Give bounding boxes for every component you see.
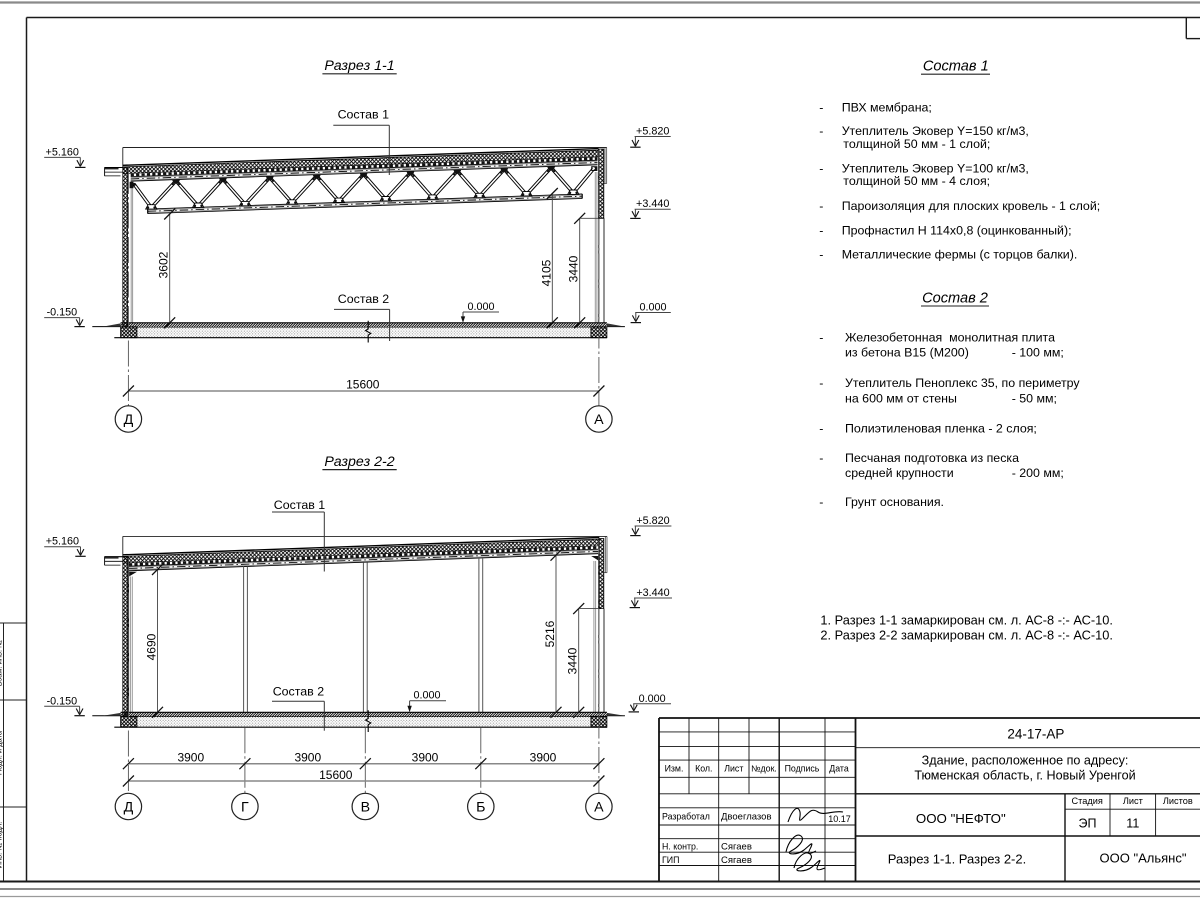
svg-text:-0.150: -0.150: [47, 307, 78, 319]
svg-text:Д: Д: [124, 799, 134, 815]
svg-text:Листов: Листов: [1163, 796, 1193, 806]
svg-text:Лист: Лист: [1123, 796, 1144, 806]
svg-text:Подпись: Подпись: [785, 764, 820, 774]
svg-text:+3.440: +3.440: [636, 587, 669, 599]
svg-text:0.000: 0.000: [413, 689, 440, 701]
svg-text:4105: 4105: [539, 259, 553, 286]
svg-text:4690: 4690: [144, 633, 158, 660]
svg-text:Н. контр.: Н. контр.: [662, 842, 698, 852]
svg-text:ООО "НЕФТО": ООО "НЕФТО": [916, 811, 1006, 826]
svg-text:Состав 1: Состав 1: [274, 498, 325, 512]
svg-text:Состав 1: Состав 1: [338, 107, 389, 121]
svg-text:Утеплитель Пеноплекс 35, по пе: Утеплитель Пеноплекс 35, по периметру: [845, 376, 1080, 390]
svg-text:средней крупности: средней крупности: [845, 466, 954, 480]
svg-text:из бетона В15 (М200): из бетона В15 (М200): [845, 346, 969, 360]
svg-text:Сягаев: Сягаев: [721, 855, 752, 866]
svg-text:ГИП: ГИП: [662, 855, 679, 865]
svg-text:0.000: 0.000: [639, 302, 666, 314]
svg-text:Взам. инв. №: Взам. инв. №: [0, 640, 4, 686]
svg-text:- 200 мм;: - 200 мм;: [1012, 466, 1064, 480]
svg-text:Грунт основания.: Грунт основания.: [845, 495, 944, 509]
svg-text:№док.: №док.: [751, 764, 777, 774]
svg-text:+3.440: +3.440: [636, 198, 669, 210]
svg-text:Д: Д: [124, 412, 134, 428]
svg-text:Здание, расположенное по адрес: Здание, расположенное по адресу:: [922, 753, 1129, 767]
svg-text:Разработал: Разработал: [662, 812, 710, 822]
svg-text:3900: 3900: [412, 750, 439, 764]
svg-text:Состав 2: Состав 2: [922, 290, 988, 306]
svg-text:+5.160: +5.160: [46, 146, 79, 158]
svg-text:Подп. и дата: Подп. и дата: [0, 730, 4, 775]
svg-text:+5.820: +5.820: [636, 515, 669, 527]
svg-text:В: В: [361, 799, 370, 815]
svg-text:3900: 3900: [294, 750, 321, 764]
svg-text:Разрез 1-1. Разрез 2-2.: Разрез 1-1. Разрез 2-2.: [888, 852, 1026, 867]
svg-text:3900: 3900: [177, 750, 204, 764]
svg-text:- 100 мм;: - 100 мм;: [1012, 346, 1064, 360]
svg-text:на 600 мм от стены: на 600 мм от стены: [845, 392, 957, 406]
svg-text:+5.820: +5.820: [636, 126, 669, 138]
svg-text:А: А: [594, 412, 604, 428]
svg-text:ПВХ мембрана;: ПВХ мембрана;: [842, 101, 932, 115]
svg-text:Пароизоляция для плоских крове: Пароизоляция для плоских кровель - 1 сло…: [842, 199, 1101, 213]
svg-text:-: -: [819, 376, 823, 390]
svg-text:А: А: [594, 799, 604, 815]
svg-text:толщиной 50 мм - 4 слоя;: толщиной 50 мм - 4 слоя;: [843, 174, 990, 188]
svg-text:Г: Г: [241, 799, 249, 815]
svg-text:-: -: [819, 124, 823, 138]
svg-text:Дата: Дата: [829, 764, 849, 774]
svg-text:2. Разрез 2-2 замаркирован см.: 2. Разрез 2-2 замаркирован см. л. АС-8 -…: [820, 628, 1113, 643]
svg-text:11: 11: [1126, 817, 1139, 831]
svg-text:15600: 15600: [319, 768, 353, 782]
svg-text:Инв. № подл.: Инв. № подл.: [0, 822, 4, 869]
svg-text:3440: 3440: [567, 255, 581, 282]
svg-text:3440: 3440: [566, 647, 580, 674]
svg-text:+5.160: +5.160: [46, 536, 79, 548]
svg-text:3900: 3900: [530, 750, 557, 764]
svg-text:Состав 1: Состав 1: [923, 59, 989, 75]
svg-text:Кол.: Кол.: [695, 764, 712, 774]
svg-text:3602: 3602: [156, 251, 170, 278]
svg-text:5216: 5216: [543, 620, 557, 647]
svg-text:Металлические фермы (с торцов: Металлические фермы (с торцов балки).: [842, 247, 1078, 261]
svg-text:Двоеглазов: Двоеглазов: [721, 812, 772, 823]
svg-text:0.000: 0.000: [467, 301, 494, 313]
svg-text:1. Разрез 1-1 замаркирован см.: 1. Разрез 1-1 замаркирован см. л. АС-8 -…: [820, 613, 1113, 628]
svg-text:Полиэтиленовая пленка - 2 слоя: Полиэтиленовая пленка - 2 слоя;: [845, 422, 1037, 436]
svg-text:- 50 мм;: - 50 мм;: [1012, 392, 1057, 406]
svg-text:Состав 2: Состав 2: [273, 685, 324, 699]
svg-text:Песчаная подготовка из песка: Песчаная подготовка из песка: [845, 451, 1019, 465]
svg-text:Профнастил Н 114х0,8 (оцинкова: Профнастил Н 114х0,8 (оцинкованный);: [842, 223, 1072, 237]
svg-text:Стадия: Стадия: [1072, 796, 1103, 806]
svg-text:толщиной 50 мм - 1 слой;: толщиной 50 мм - 1 слой;: [843, 137, 990, 151]
svg-text:Железобетонная монолитная пли: Железобетонная монолитная плита: [845, 331, 1055, 345]
svg-text:Сягаев: Сягаев: [721, 842, 752, 853]
svg-text:10.17: 10.17: [828, 814, 851, 824]
svg-text:Разрез 2-2: Разрез 2-2: [324, 454, 394, 470]
svg-text:-0.150: -0.150: [47, 695, 78, 707]
svg-text:-: -: [819, 451, 823, 465]
svg-text:24-17-АР: 24-17-АР: [1007, 727, 1064, 742]
svg-text:ООО "Альянс": ООО "Альянс": [1100, 851, 1187, 866]
svg-text:Тюменская область, г. Новый Ур: Тюменская область, г. Новый Уренгой: [914, 768, 1135, 782]
svg-text:Утеплитель Эковер Y=150 кг/м3,: Утеплитель Эковер Y=150 кг/м3,: [842, 124, 1029, 138]
svg-text:Б: Б: [476, 799, 485, 815]
svg-text:Состав 2: Состав 2: [338, 292, 389, 306]
svg-text:Изм.: Изм.: [665, 764, 684, 774]
svg-text:ЭП: ЭП: [1079, 817, 1097, 831]
svg-text:-: -: [819, 223, 823, 237]
svg-text:-: -: [819, 199, 823, 213]
svg-text:15600: 15600: [346, 378, 380, 392]
svg-text:Разрез 1-1: Разрез 1-1: [324, 58, 394, 74]
svg-text:-: -: [819, 331, 823, 345]
svg-text:-: -: [819, 422, 823, 436]
svg-text:-: -: [819, 495, 823, 509]
svg-text:0.000: 0.000: [639, 693, 666, 705]
svg-text:-: -: [819, 162, 823, 176]
svg-text:-: -: [819, 101, 823, 115]
svg-text:-: -: [819, 247, 823, 261]
svg-text:Лист: Лист: [724, 764, 743, 774]
